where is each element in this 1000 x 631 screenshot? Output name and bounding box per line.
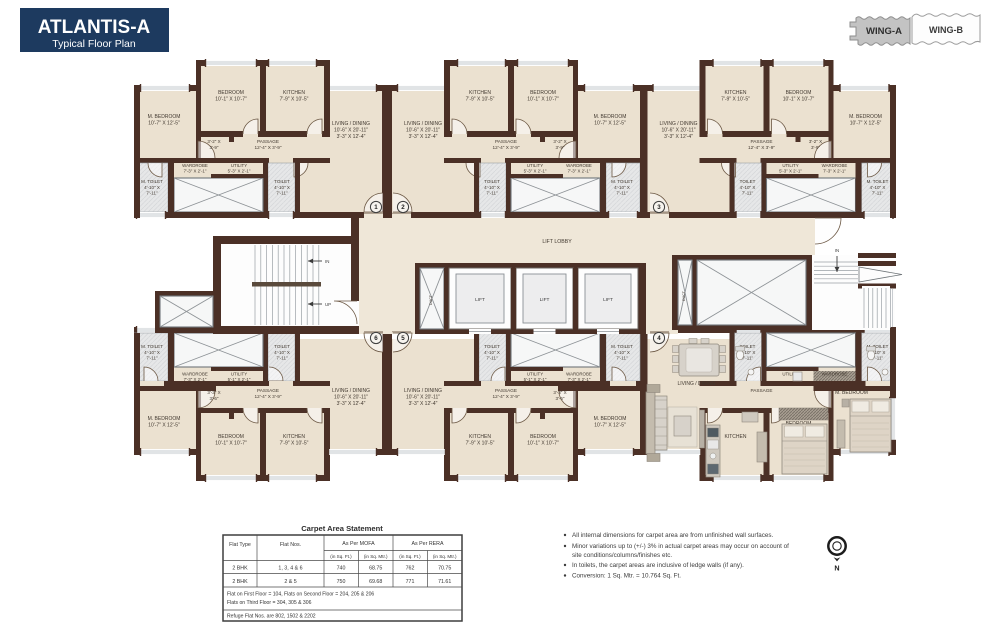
svg-text:WARDROBE7'-3" X 2'-1": WARDROBE7'-3" X 2'-1" (182, 163, 208, 174)
svg-text:KITCHEN7'-9" X 10'-5": KITCHEN7'-9" X 10'-5" (466, 434, 495, 446)
svg-text:(in Sq. Ft.): (in Sq. Ft.) (399, 554, 421, 559)
svg-text:As Per RERA: As Per RERA (411, 541, 444, 547)
svg-text:PASSAGE12'-4" X 3'-9": PASSAGE12'-4" X 3'-9" (254, 388, 281, 399)
svg-text:KITCHEN7'-9" X 10'-5": KITCHEN7'-9" X 10'-5" (280, 90, 309, 102)
svg-text:WING-A: WING-A (866, 26, 902, 37)
svg-text:WARDROBE7'-3" X 2'-1": WARDROBE7'-3" X 2'-1" (822, 163, 848, 174)
svg-text:Typical Floor Plan: Typical Floor Plan (52, 38, 136, 50)
svg-text:M. BEDROOM10'-7" X 12'-5": M. BEDROOM10'-7" X 12'-5" (849, 114, 882, 126)
svg-text:(in Sq. Mtr.): (in Sq. Mtr.) (364, 554, 388, 559)
svg-text:Conversion: 1 Sq. Mtr. = 10.76: Conversion: 1 Sq. Mtr. = 10.764 Sq. Ft. (572, 573, 681, 580)
svg-text:site conditions/columns/finish: site conditions/columns/finishes etc. (572, 552, 672, 559)
svg-text:M. BEDROOM10'-7" X 12'-5": M. BEDROOM10'-7" X 12'-5" (148, 114, 181, 126)
svg-text:6: 6 (374, 335, 378, 342)
svg-text:1: 1 (374, 204, 378, 211)
svg-text:3: 3 (657, 204, 661, 211)
svg-text:KITCHEN7'-9" X 10'-5": KITCHEN7'-9" X 10'-5" (721, 90, 750, 102)
svg-text:N: N (834, 564, 839, 573)
svg-text:KITCHEN7'-9" X 10'-5": KITCHEN7'-9" X 10'-5" (466, 90, 495, 102)
svg-text:69.68: 69.68 (369, 579, 382, 585)
svg-text:LIFT: LIFT (603, 297, 613, 303)
svg-text:LIVING / DINING10'-6" X 20'-11: LIVING / DINING10'-6" X 20'-11"3'-3" X 1… (659, 121, 697, 140)
svg-text:WARDROBE7'-3" X 2'-1": WARDROBE7'-3" X 2'-1" (182, 372, 208, 383)
svg-text:BEDROOM10'-1" X 10'-7": BEDROOM10'-1" X 10'-7" (215, 90, 247, 102)
svg-text:DUCT: DUCT (682, 290, 686, 301)
svg-text:740: 740 (337, 566, 346, 572)
svg-text:LIVING / DINING10'-6" X 20'-11: LIVING / DINING10'-6" X 20'-11"3'-3" X 1… (404, 388, 442, 407)
svg-text:PASSAGE12'-4" X 3'-9": PASSAGE12'-4" X 3'-9" (492, 388, 519, 399)
svg-text:IN: IN (325, 259, 329, 264)
svg-text:2 BHK: 2 BHK (232, 579, 248, 585)
svg-text:2 & 5: 2 & 5 (284, 579, 296, 585)
svg-text:LIFT: LIFT (540, 297, 550, 303)
svg-text:68.75: 68.75 (369, 566, 382, 572)
svg-text:WARDROBE7'-3" X 2'-1": WARDROBE7'-3" X 2'-1" (566, 163, 592, 174)
svg-text:PASSAGE12'-4" X 3'-9": PASSAGE12'-4" X 3'-9" (748, 139, 775, 150)
svg-text:Flat Nos.: Flat Nos. (280, 542, 301, 548)
svg-text:As Per MOFA: As Per MOFA (342, 541, 375, 547)
svg-text:UP: UP (325, 302, 331, 307)
svg-text:BEDROOM10'-1" X 10'-7": BEDROOM10'-1" X 10'-7" (215, 434, 247, 446)
svg-text:WARDROBE7'-3" X 2'-1": WARDROBE7'-3" X 2'-1" (566, 372, 592, 383)
svg-text:2 BHK: 2 BHK (232, 566, 248, 572)
svg-text:WING-B: WING-B (929, 25, 963, 35)
svg-text:BEDROOM10'-1" X 10'-7": BEDROOM10'-1" X 10'-7" (783, 90, 815, 102)
svg-text:4: 4 (657, 335, 661, 342)
svg-text:5: 5 (401, 335, 405, 342)
svg-text:Flat Type: Flat Type (229, 542, 251, 548)
svg-text:71.61: 71.61 (438, 579, 451, 585)
svg-text:M. BEDROOM10'-7" X 12'-5": M. BEDROOM10'-7" X 12'-5" (594, 114, 627, 126)
svg-text:BEDROOM10'-1" X 10'-7": BEDROOM10'-1" X 10'-7" (527, 434, 559, 446)
svg-text:KITCHEN7'-9" X 10'-5": KITCHEN7'-9" X 10'-5" (280, 434, 309, 446)
svg-text:LIFT LOBBY: LIFT LOBBY (542, 239, 572, 245)
svg-text:DUCT: DUCT (429, 294, 433, 305)
svg-text:Refuge Flat Nos. are 802, 1502: Refuge Flat Nos. are 802, 1502 & 2202 (227, 614, 316, 620)
svg-text:All internal dimensions for ca: All internal dimensions for carpet area … (572, 532, 773, 539)
svg-text:LIFT: LIFT (475, 297, 485, 303)
svg-text:PASSAGE12'-4" X 3'-9": PASSAGE12'-4" X 3'-9" (492, 139, 519, 150)
svg-text:KITCHEN: KITCHEN (725, 434, 747, 440)
svg-text:M. BEDROOM10'-7" X 12'-5": M. BEDROOM10'-7" X 12'-5" (148, 416, 181, 428)
svg-text:ATLANTIS-A: ATLANTIS-A (38, 17, 151, 38)
svg-text:LIVING / DINING10'-6" X 20'-11: LIVING / DINING10'-6" X 20'-11"3'-3" X 1… (332, 121, 370, 140)
svg-text:(in Sq. Mtr.): (in Sq. Mtr.) (433, 554, 457, 559)
svg-text:M. BEDROOM: M. BEDROOM (835, 390, 868, 396)
svg-text:Minor variations up to (+/-) 3: Minor variations up to (+/-) 3% in actua… (572, 543, 789, 550)
svg-text:LIVING / DINING: LIVING / DINING (677, 381, 715, 387)
svg-text:(in Sq. Ft.): (in Sq. Ft.) (330, 554, 352, 559)
svg-text:Carpet Area Statement: Carpet Area Statement (301, 524, 383, 533)
svg-text:70.75: 70.75 (438, 566, 451, 572)
svg-text:750: 750 (337, 579, 346, 585)
svg-text:PASSAGE12'-4" X 3'-9": PASSAGE12'-4" X 3'-9" (254, 139, 281, 150)
svg-text:PASSAGE: PASSAGE (750, 388, 772, 393)
svg-text:M. BEDROOM10'-7" X 12'-5": M. BEDROOM10'-7" X 12'-5" (594, 416, 627, 428)
svg-text:Flats on Third Floor = 304, 30: Flats on Third Floor = 304, 305 & 306 (227, 600, 312, 606)
svg-text:Flat on First Floor = 104, Fla: Flat on First Floor = 104, Flats on Seco… (227, 592, 374, 598)
svg-text:2: 2 (401, 204, 405, 211)
svg-text:WARDROBE: WARDROBE (822, 372, 848, 377)
svg-text:762: 762 (406, 566, 415, 572)
svg-text:IN: IN (835, 248, 839, 253)
svg-text:771: 771 (406, 579, 415, 585)
svg-text:1, 3, 4 & 6: 1, 3, 4 & 6 (278, 566, 302, 572)
svg-text:In toilets, the carpet areas a: In toilets, the carpet areas are inclusi… (572, 562, 744, 569)
svg-text:LIVING / DINING10'-6" X 20'-11: LIVING / DINING10'-6" X 20'-11"3'-3" X 1… (332, 388, 370, 407)
svg-text:BEDROOM10'-1" X 10'-7": BEDROOM10'-1" X 10'-7" (527, 90, 559, 102)
svg-text:LIVING / DINING10'-6" X 20'-11: LIVING / DINING10'-6" X 20'-11"3'-3" X 1… (404, 121, 442, 140)
